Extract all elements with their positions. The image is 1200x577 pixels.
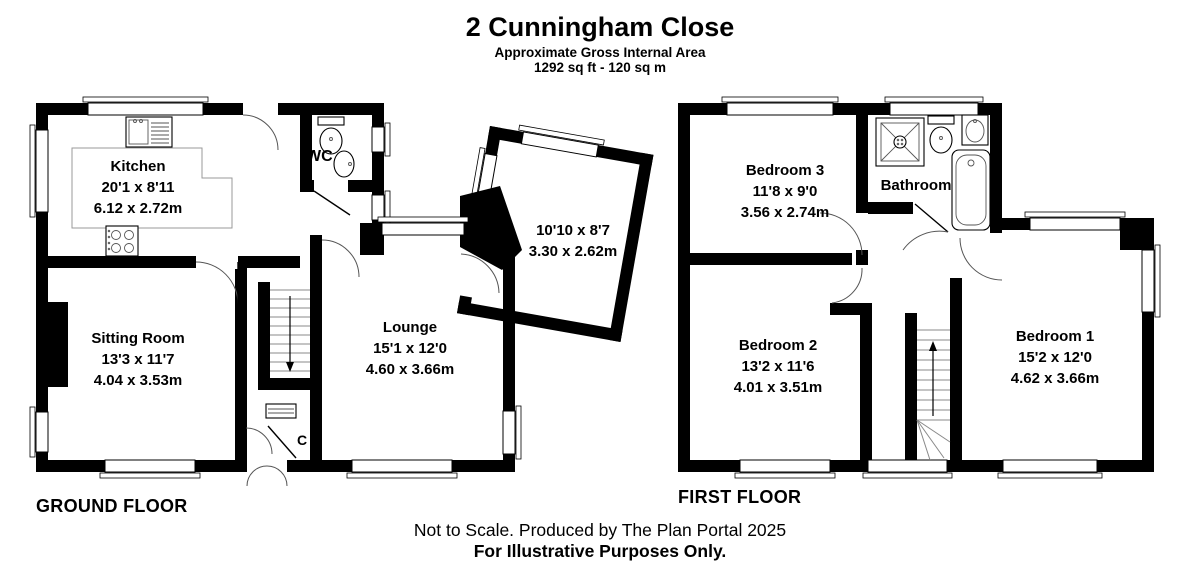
wc-door-leaf: [314, 191, 350, 215]
shower-icon: [876, 118, 924, 166]
page-subtitle: Approximate Gross Internal Area: [0, 45, 1200, 60]
passage-window: [378, 217, 468, 235]
stairs-ground: [270, 290, 310, 372]
conservatory-top-window: [516, 125, 604, 158]
room-label-conservatory: 10'10 x 8'7 3.30 x 2.62m: [529, 220, 617, 262]
first-floor-label: FIRST FLOOR: [678, 487, 801, 508]
hob-icon: [106, 226, 138, 256]
bedroom2-bottom-window: [735, 460, 835, 478]
page-area: 1292 sq ft - 120 sq m: [0, 60, 1200, 75]
floorplan-drawing: [0, 0, 1200, 577]
room-label-lounge: Lounge 15'1 x 12'0 4.60 x 3.66m: [366, 317, 454, 380]
kitchen-sink-icon: [126, 117, 172, 147]
page-title: 2 Cunningham Close: [0, 12, 1200, 43]
room-label-sitting-room: Sitting Room 13'3 x 11'7 4.04 x 3.53m: [91, 328, 184, 391]
bathtub-icon: [952, 150, 990, 230]
sitting-room-side-window: [30, 407, 48, 457]
kitchen-side-window: [30, 125, 48, 217]
first-floor-plan: [678, 97, 1160, 478]
room-label-kitchen: Kitchen 20'1 x 8'11 6.12 x 2.72m: [94, 156, 182, 219]
room-label-bedroom3: Bedroom 3 11'8 x 9'0 3.56 x 2.74m: [741, 160, 829, 223]
footer-disclaimer: Not to Scale. Produced by The Plan Porta…: [0, 520, 1200, 541]
bedroom3-top-window: [722, 97, 838, 115]
bedroom1-door-arc: [960, 238, 1002, 280]
hall-lounge-door-arc: [322, 240, 359, 277]
ground-floor-label: GROUND FLOOR: [36, 496, 188, 517]
room-label-cupboard: C: [297, 432, 307, 448]
wc-window-upper: [372, 123, 390, 156]
room-label-wc: WC: [306, 148, 333, 166]
lounge-bottom-window: [347, 460, 457, 478]
basin-icon-first: [962, 115, 988, 145]
floorplan-page: 2 Cunningham Close Approximate Gross Int…: [0, 0, 1200, 577]
room-label-bedroom2: Bedroom 2 13'2 x 11'6 4.01 x 3.51m: [734, 335, 822, 398]
chimney-breast: [47, 302, 68, 387]
bedroom1-side-window: [1142, 245, 1160, 317]
kitchen-top-window: [83, 97, 208, 115]
bathroom-top-window: [885, 97, 983, 115]
cupboard-door: [246, 426, 296, 458]
bedroom1-bottom-window: [998, 460, 1102, 478]
bedroom2-door-arc: [832, 268, 862, 303]
lounge-side-window: [503, 406, 521, 459]
toilet-icon-first: [928, 116, 954, 153]
landing-bottom-window: [863, 460, 952, 478]
cupboard-shelf: [266, 404, 296, 418]
bedroom1-top-window: [1025, 212, 1125, 230]
sitting-room-bottom-window: [100, 460, 200, 478]
room-label-bathroom: Bathroom: [881, 175, 952, 196]
basin-icon-ground: [334, 151, 354, 177]
room-label-bedroom1: Bedroom 1 15'2 x 12'0 4.62 x 3.66m: [1011, 326, 1099, 389]
stairs-first: [917, 330, 950, 460]
footer-purpose: For Illustrative Purposes Only.: [0, 541, 1200, 562]
side-door-arc: [243, 115, 278, 150]
